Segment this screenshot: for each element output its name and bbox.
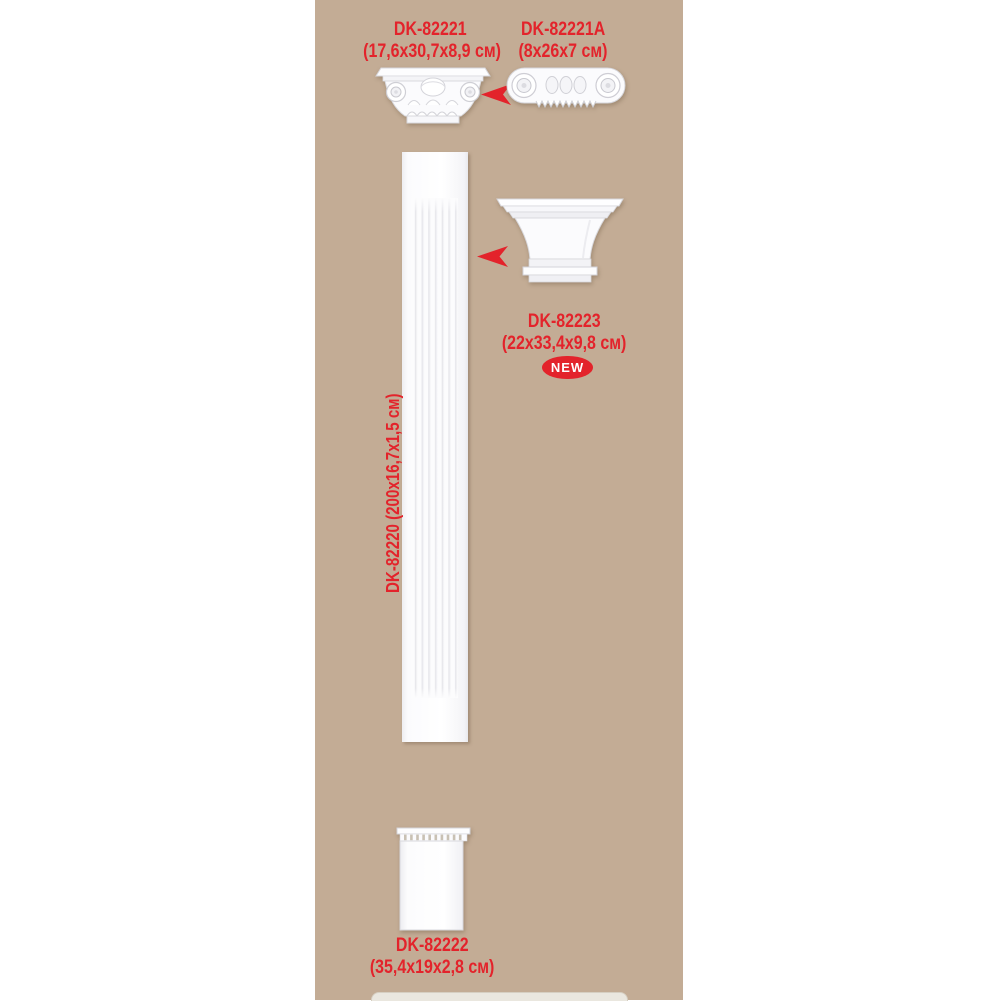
product-dims-dk82221a: (8x26x7 см): [483, 41, 643, 63]
plain-capital-image: [494, 194, 626, 288]
product-code-dk82223: DK-82223: [484, 311, 644, 333]
beige-panel: [315, 0, 683, 1000]
label-dk82221a: DK-82221A (8x26x7 см): [483, 19, 643, 63]
product-code-dk82221a: DK-82221A: [483, 19, 643, 41]
new-badge: NEW: [542, 356, 593, 379]
product-code-dk82222: DK-82222: [352, 935, 512, 957]
ionic-capital-image: [506, 66, 626, 111]
catalog-page: DK-82221 (17,6x30,7x8,9 см) DK-82221A (8…: [0, 0, 1000, 1000]
label-dk82222: DK-82222 (35,4x19x2,8 см): [352, 935, 512, 979]
product-dims-dk82223: (22x33,4x9,8 см): [484, 333, 644, 355]
flute-fade-bottom: [411, 688, 458, 698]
product-dims-dk82222: (35,4x19x2,8 см): [352, 957, 512, 979]
pilaster-base-image: [396, 826, 471, 932]
corinthian-capital-image: [374, 63, 492, 129]
pilaster-shaft-image: [402, 152, 468, 742]
label-dk82220: DK-82220 (200x16,7x1,5 см): [382, 392, 404, 612]
label-dk82223: DK-82223 (22x33,4x9,8 см): [484, 311, 644, 355]
shaft-fluting: [411, 198, 458, 698]
flute-fade-top: [411, 198, 458, 212]
